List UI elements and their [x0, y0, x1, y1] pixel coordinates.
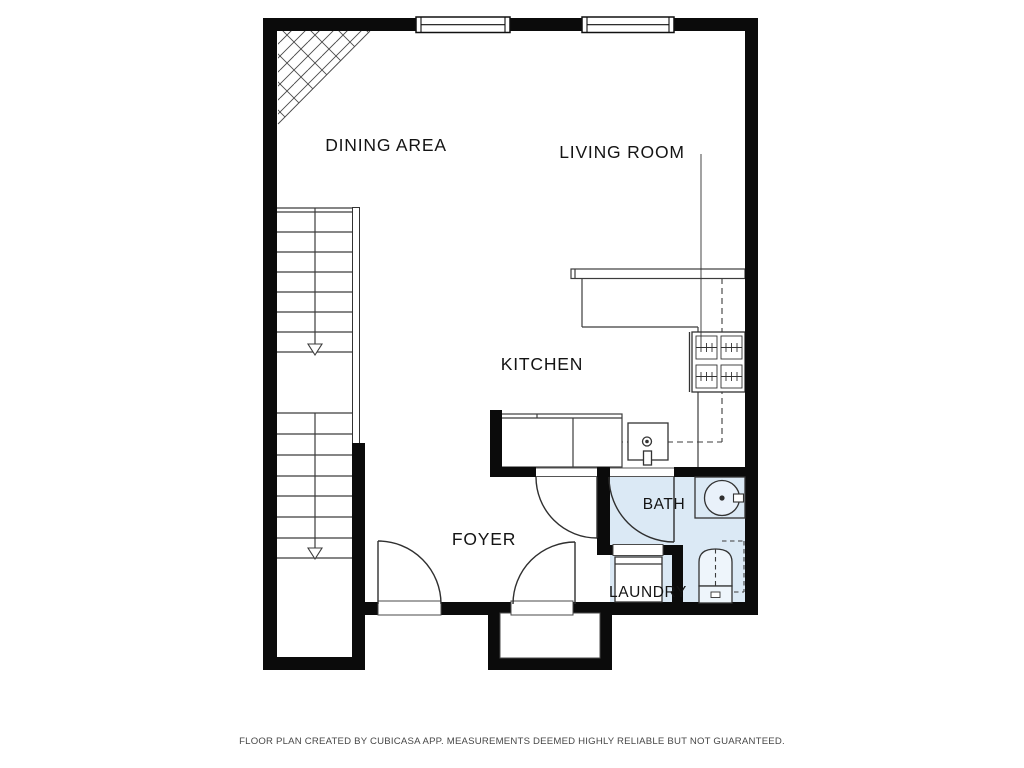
entry-vestibule — [500, 613, 600, 658]
kitchen-island-bar — [571, 269, 745, 279]
wall-stairs-right — [352, 443, 365, 670]
kitchen-counters — [500, 154, 745, 467]
staircase — [277, 208, 360, 560]
floor-plan-page: DINING AREA LIVING ROOM KITCHEN FOYER BA… — [0, 0, 1024, 768]
wall-stairs-bottom — [263, 657, 365, 670]
room-label-laundry: LAUNDRY — [609, 584, 687, 601]
stairs-down-arrow-icon — [308, 548, 322, 559]
entry-threshold — [511, 601, 573, 615]
door-swing-foyer — [536, 477, 597, 538]
room-label-living: LIVING ROOM — [559, 142, 684, 162]
side-door-threshold — [378, 601, 441, 615]
wall-right — [745, 18, 758, 615]
room-label-dining: DINING AREA — [325, 135, 447, 155]
room-label-foyer: FOYER — [452, 529, 516, 549]
kitchen-sink-icon — [628, 423, 668, 465]
wall-laundry-right — [672, 545, 683, 615]
stair-railing — [353, 208, 360, 444]
footer-disclaimer: FLOOR PLAN CREATED BY CUBICASA APP. MEAS… — [0, 736, 1024, 747]
toilet-icon — [699, 549, 732, 603]
floor-plan-svg: DINING AREA LIVING ROOM KITCHEN FOYER BA… — [0, 0, 1024, 768]
window-icon — [582, 17, 674, 33]
window-icon — [416, 17, 510, 33]
wall-kitchen-stub — [490, 410, 502, 477]
stairs-down-arrow-icon — [308, 344, 322, 355]
wall-vestibule-bottom — [488, 658, 612, 670]
wall-left — [263, 18, 277, 670]
void-hatch-icon — [278, 31, 370, 124]
laundry-threshold — [613, 545, 663, 556]
door-swing-side — [378, 541, 441, 604]
wall-vestibule-right — [600, 613, 612, 670]
wall-bath-top — [674, 467, 745, 477]
wall-kitchen-bottom — [490, 467, 536, 477]
room-label-kitchen: KITCHEN — [501, 354, 583, 374]
room-label-bath: BATH — [643, 496, 686, 513]
kitchen-counter — [500, 414, 622, 467]
wall-bath-left — [597, 467, 610, 545]
door-swing-entry — [513, 542, 575, 604]
